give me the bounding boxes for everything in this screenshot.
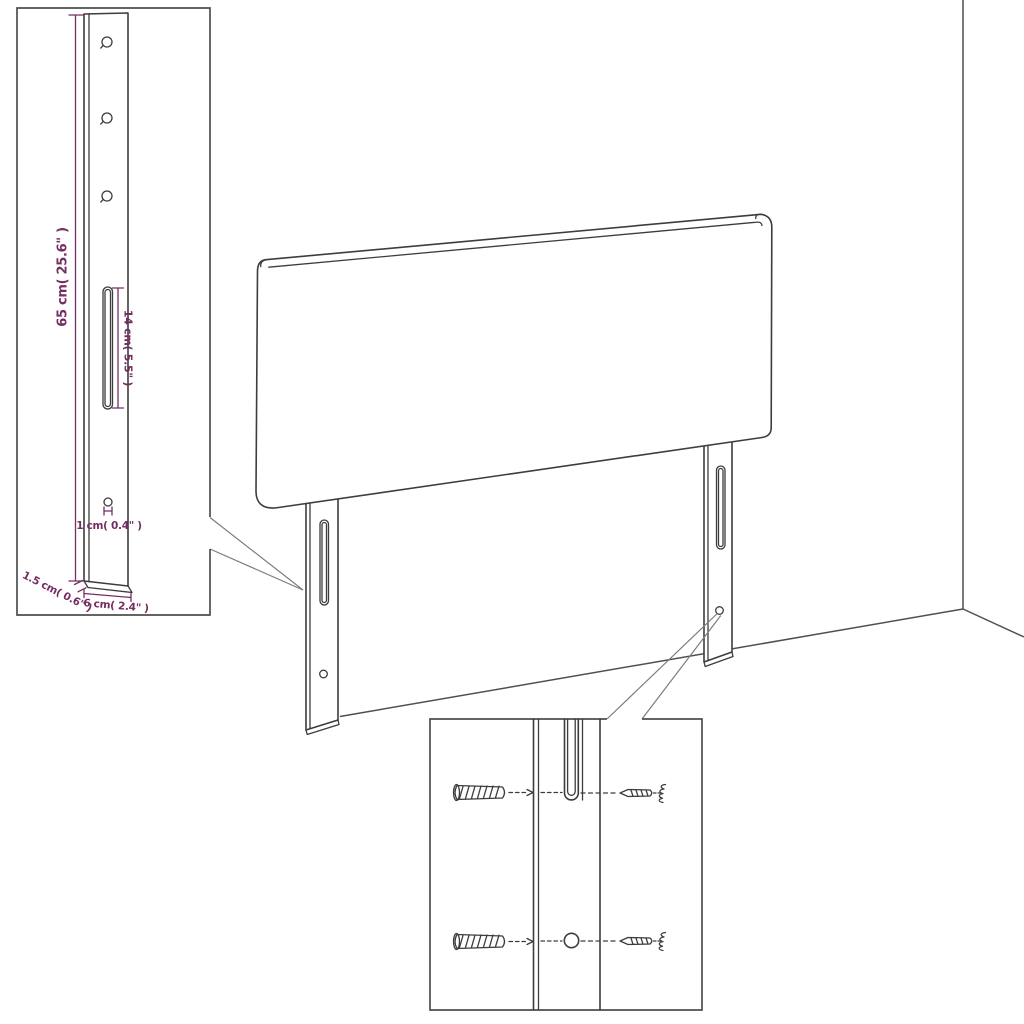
leg-detail-inset: 65 cm( 25.6" ) 14 cm( 5.5" ) 1 cm( 0.4" … [17, 8, 210, 615]
hole-label: 1 cm( 0.4" ) [76, 520, 142, 532]
callout-wedge-left [210, 518, 303, 591]
hardware-detail-inset [430, 719, 702, 1010]
headboard-panel [256, 214, 772, 508]
slot-label: 14 cm( 5.5" ) [122, 310, 135, 386]
assembly-diagram: 65 cm( 25.6" ) 14 cm( 5.5" ) 1 cm( 0.4" … [0, 0, 1024, 1024]
right-leg [704, 428, 733, 667]
height-label: 65 cm( 25.6" ) [56, 227, 71, 326]
diagram-page: 65 cm( 25.6" ) 14 cm( 5.5" ) 1 cm( 0.4" … [0, 0, 1024, 1024]
leg-bracket-drawing [84, 13, 132, 593]
left-leg [306, 486, 339, 735]
